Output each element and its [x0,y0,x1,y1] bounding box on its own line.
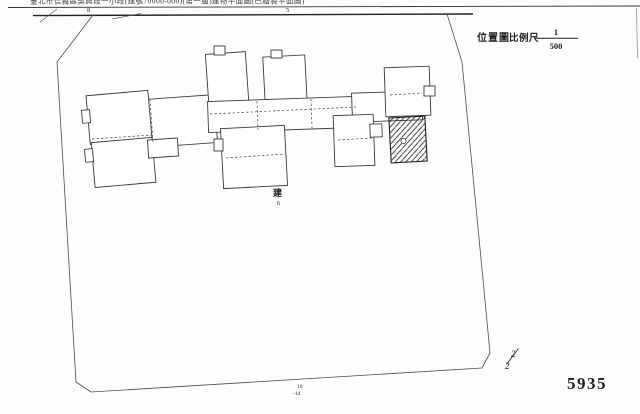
road-label-5: 5 [286,7,289,14]
parcel-label: 10 -14 [293,384,303,397]
building-mark: 建 6 [273,187,283,207]
unit-marker [401,138,406,143]
top-border-lines [8,6,640,58]
legend-scale: 位置圖 比例尺 1 500 [477,27,578,51]
hatched-unit [389,116,427,163]
map-type-label: 位置圖 [477,31,510,44]
edge-bump [271,50,282,58]
page-fraction-denominator: 2 [505,361,510,371]
edge-bump [214,46,225,55]
building-footprint [81,46,435,189]
wing-left-lower [91,137,156,187]
scale-numerator: 1 [554,27,558,37]
road-label-8: 8 [87,7,90,14]
sheet-number: 5935 [567,374,607,393]
parcel-label-line2: -14 [293,391,301,397]
site-plan-drawing: 8 5 [0,0,640,414]
edge-bump [81,110,90,124]
edge-bump [84,149,93,163]
wing-step [147,138,178,158]
edge-bump [424,86,435,96]
scale-denominator: 500 [550,41,563,51]
scale-label: 比例尺 [509,32,539,44]
edge-bump [214,139,223,151]
building-mark-char: 建 [273,187,283,198]
page-fraction: 2 2 [505,349,519,372]
parcel-label-line1: 10 [297,384,303,390]
building-mark-number: 6 [277,201,280,207]
scanned-plan-sheet: 臺北市信義區吳興段一小段(建號70000-000)(第一層)建物平面圖(已繪製平… [0,0,640,414]
wing-left-upper [86,90,152,144]
tower-a [205,52,248,104]
edge-bump [370,124,382,137]
wing-right-lower [333,114,375,166]
wing-mid-lower [220,125,287,188]
